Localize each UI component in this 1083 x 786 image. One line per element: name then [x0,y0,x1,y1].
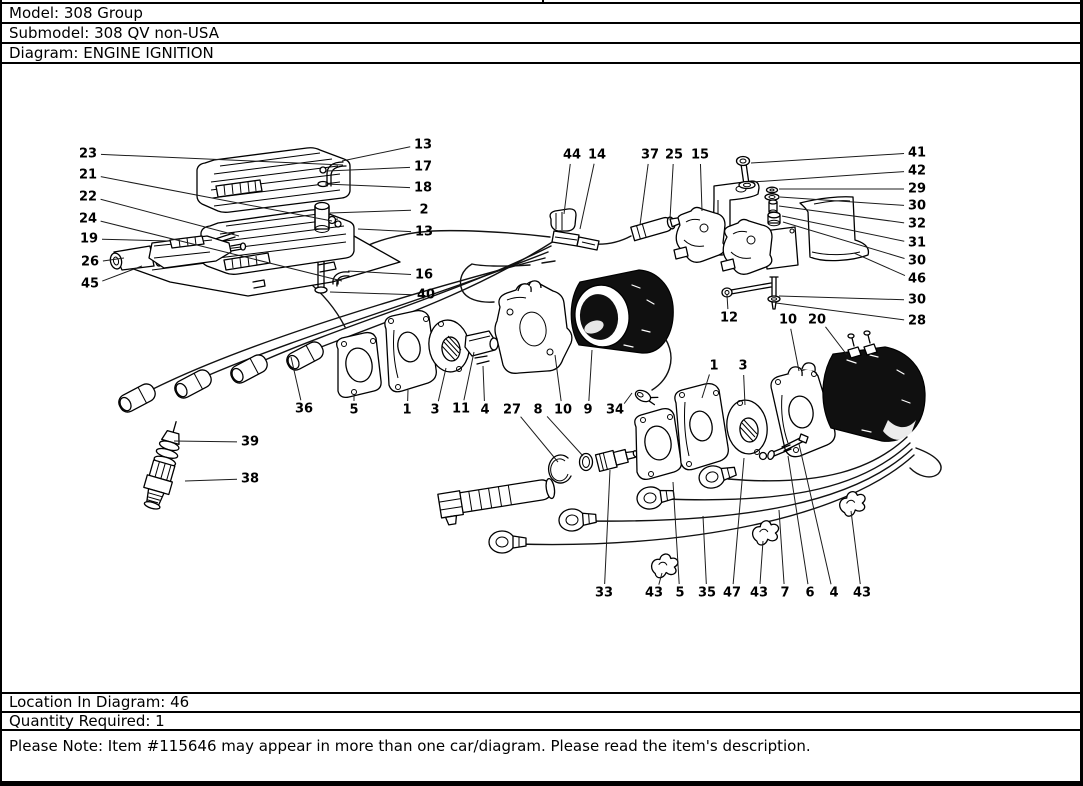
callout-14: 14 [588,148,606,163]
callout-26: 26 [81,255,99,270]
callout-leader-4 [483,366,484,401]
callout-leader-43 [760,541,763,584]
callout-leader-30 [779,296,904,300]
callout-3: 3 [738,359,747,374]
callout-5: 5 [675,586,684,601]
callout-33: 33 [595,586,613,601]
note-text: Please Note: Item #115646 may appear in … [9,737,811,755]
callout-22: 22 [79,190,97,205]
callout-1: 1 [402,403,411,418]
callout-leader-47 [733,458,744,584]
callout-45: 45 [81,277,99,292]
coil-boot-cylinder-1 [571,270,673,406]
coil-bracket-hardware [674,157,868,310]
callout-43: 43 [645,586,663,601]
callout-20: 20 [808,313,826,328]
callout-leader-27 [521,417,558,462]
callout-27: 27 [503,403,521,418]
footer-row-quantity: Quantity Required: 1 [2,713,1080,731]
callout-34: 34 [606,403,624,418]
callout-7: 7 [780,586,789,601]
callout-leader-37 [640,164,648,225]
callout-10: 10 [554,403,572,418]
model-text: Model: 308 Group [9,4,143,22]
distributor-assembly-1 [337,281,572,398]
callout-leader-20 [825,327,847,355]
callout-30: 30 [908,199,926,214]
callout-leader-7 [779,510,784,584]
callout-leader-4 [799,444,831,584]
callout-46: 46 [908,272,926,287]
callout-30: 30 [908,254,926,269]
grommet-34 [634,388,658,406]
callout-leader-6 [788,456,808,584]
diagram-title-text: Diagram: ENGINE IGNITION [9,44,214,62]
callout-9: 9 [583,403,592,418]
bracket-46 [800,197,868,261]
quantity-text: Quantity Required: 1 [9,712,165,730]
callout-16: 16 [415,268,433,283]
callout-leader-13 [358,229,411,232]
callout-43: 43 [750,586,768,601]
callout-leader-14 [580,164,594,229]
callout-24: 24 [79,212,97,227]
callout-6: 6 [805,586,814,601]
callout-19: 19 [80,232,98,247]
callout-leader-9 [589,350,592,401]
footer-row-location: Location In Diagram: 46 [2,694,1080,713]
callout-leader-41 [751,154,904,163]
callout-5: 5 [349,403,358,418]
callout-leader-38 [185,479,237,481]
callout-36: 36 [295,402,313,417]
callout-leader-13 [342,147,410,161]
spark-plug-boots-rear [489,461,738,553]
header-row-submodel: Submodel: 308 QV non-USA [2,24,1080,44]
callout-leader-2 [330,210,411,213]
callout-2: 2 [419,203,428,218]
callout-leader-25 [670,164,673,219]
callout-leader-44 [564,164,570,214]
scanned-parts-page: Model: 308 Group Submodel: 308 QV non-US… [0,0,1083,786]
submodel-text: Submodel: 308 QV non-USA [9,24,219,42]
callout-31: 31 [908,236,926,251]
callout-37: 37 [641,148,659,163]
callout-17: 17 [414,160,432,175]
callout-25: 25 [665,148,683,163]
callout-leader-34 [624,393,632,404]
callout-leader-43 [851,511,860,584]
callout-8: 8 [533,403,542,418]
location-text: Location In Diagram: 46 [9,693,189,711]
header-table: Model: 308 Group Submodel: 308 QV non-US… [2,2,1080,64]
callout-leader-8 [547,416,583,456]
callout-40: 40 [417,288,435,303]
callout-38: 38 [241,472,259,487]
page-bottom-rule [2,781,1080,786]
callout-47: 47 [723,586,741,601]
sensor-33 [596,445,640,471]
callout-32: 32 [908,217,926,232]
callout-35: 35 [698,586,716,601]
callout-21: 21 [79,168,97,183]
callout-leader-3 [438,368,446,401]
callout-4: 4 [829,586,838,601]
wire-terminal-and-sleeve [550,209,681,250]
footer-table: Location In Diagram: 46 Quantity Require… [2,692,1080,786]
callout-3: 3 [430,403,439,418]
header-row-diagram: Diagram: ENGINE IGNITION [2,44,1080,64]
callout-leader-35 [703,516,706,584]
callout-29: 29 [908,182,926,197]
spark-plug [139,418,189,512]
callout-41: 41 [908,146,926,161]
callout-4: 4 [480,403,489,418]
callout-13: 13 [415,225,433,240]
callout-1: 1 [709,359,718,374]
callout-leader-10 [791,329,799,371]
callout-28: 28 [908,314,926,329]
distributor-assembly-2 [635,363,835,479]
callout-39: 39 [241,435,259,450]
callout-leader-40 [330,292,413,295]
callout-44: 44 [563,148,581,163]
callout-11: 11 [452,402,470,417]
callout-13: 13 [414,138,432,153]
coil-boot-cylinder-2 [823,331,925,441]
callout-23: 23 [79,147,97,162]
callout-10: 10 [779,313,797,328]
ignition-coil [674,207,725,262]
callout-leader-15 [700,164,702,211]
callout-15: 15 [691,148,709,163]
exploded-parts-diagram: 2321222419264513171821316404414372515414… [2,65,1080,692]
callout-43: 43 [853,586,871,601]
callout-30: 30 [908,293,926,308]
callout-42: 42 [908,164,926,179]
callout-leader-19 [102,239,169,241]
callout-leader-42 [752,172,904,182]
footer-row-note: Please Note: Item #115646 may appear in … [2,731,1080,786]
callout-leader-33 [605,470,610,584]
callout-leader-39 [174,441,237,442]
header-row-model: Model: 308 Group [2,4,1080,24]
wire-clips [650,488,869,579]
callout-12: 12 [720,311,738,326]
callout-18: 18 [414,181,432,196]
